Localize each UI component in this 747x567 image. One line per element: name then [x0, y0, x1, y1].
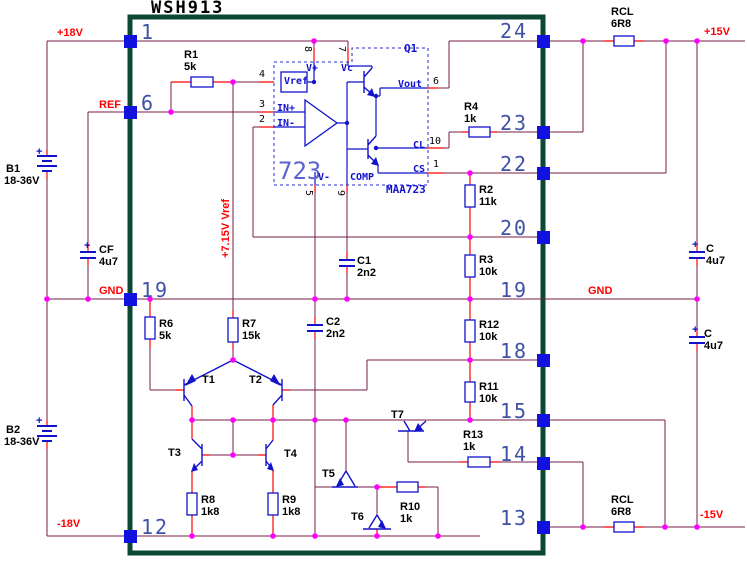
label-r1-ref: R1 [184, 50, 198, 61]
label-icpin-8: 8 [302, 46, 312, 52]
label-icpin-1: 1 [433, 160, 439, 170]
label-r9-ref: R9 [282, 495, 296, 506]
schematic-page: WSH913 +18VREFGND-18V+15VGND-15V+7.15V V… [0, 0, 747, 567]
label-ic-comp: COMP [350, 173, 374, 183]
label-r8-val: 1k8 [201, 507, 219, 518]
label-c1-ref: C1 [357, 256, 371, 267]
label-ic-723: 723 [278, 159, 321, 183]
label-t4-ref: T4 [284, 449, 297, 460]
label-b1-plus: + [36, 147, 42, 158]
label-pin-19-left: 19 [141, 280, 169, 300]
label-r1-val: 5k [184, 62, 196, 73]
label-pin-6: 6 [141, 93, 155, 113]
label-pin-14: 14 [500, 444, 528, 464]
label-r8-ref: R8 [201, 495, 215, 506]
label-icpin-10: 10 [429, 137, 441, 147]
label-ic-inplus: IN+ [277, 104, 295, 114]
label-r2-val: 11k [479, 197, 497, 208]
label-pin-19-right: 19 [500, 280, 528, 300]
label-t7-ref: T7 [391, 410, 404, 421]
label-pin-22: 22 [500, 154, 528, 174]
label-net-minus15v: -15V [700, 510, 723, 521]
label-r12-val: 10k [479, 332, 497, 343]
label-net-plus18v: +18V [57, 28, 83, 39]
label-ic-cs: CS [413, 165, 425, 175]
label-pin-23: 23 [500, 113, 528, 133]
label-r11-ref: R11 [479, 382, 499, 393]
label-t5-ref: T5 [322, 469, 335, 480]
label-ic-q1: Q1 [404, 43, 417, 54]
label-icpin-7: 7 [336, 46, 346, 52]
label-c-bot-plus: + [692, 325, 698, 336]
label-ic-vc: Vc [341, 64, 353, 74]
label-net-vref-7v15: +7.15V Vref [221, 199, 232, 258]
label-icpin-4: 4 [259, 70, 265, 80]
label-pin-1: 1 [141, 22, 155, 42]
label-b2-val: 18-36V [4, 437, 39, 448]
label-ic-cl: CL [413, 141, 425, 151]
label-ic-vplus: V+ [306, 64, 318, 74]
label-b1-val: 18-36V [4, 176, 39, 187]
label-t6-ref: T6 [351, 512, 364, 523]
label-c-top-val: 4u7 [706, 256, 725, 267]
label-r2-ref: R2 [479, 185, 493, 196]
label-r7-ref: R7 [242, 319, 256, 330]
label-r6-val: 5k [159, 331, 171, 342]
label-cf-ref: CF [99, 245, 114, 256]
label-ic-vminus: V- [318, 173, 330, 183]
label-c2-val: 2n2 [326, 329, 345, 340]
label-r4-ref: R4 [464, 102, 478, 113]
label-net-gnd-left: GND [99, 286, 123, 297]
label-icpin-9: 9 [335, 190, 345, 196]
label-rcl-top-val: 6R8 [611, 19, 631, 30]
label-c-top-ref: C [706, 244, 714, 255]
label-r11-val: 10k [479, 394, 497, 405]
label-cf-plus: + [84, 241, 90, 252]
label-r3-ref: R3 [479, 255, 493, 266]
label-c2-ref: C2 [326, 317, 340, 328]
label-net-plus15v: +15V [704, 27, 730, 38]
label-r4-val: 1k [464, 114, 476, 125]
label-r6-ref: R6 [159, 319, 173, 330]
label-r7-val: 15k [242, 331, 260, 342]
label-icpin-6: 6 [433, 77, 439, 87]
label-icpin-3: 3 [259, 100, 265, 110]
label-t2-ref: T2 [249, 375, 262, 386]
label-b2-plus: + [36, 416, 42, 427]
label-icpin-5: 5 [303, 190, 313, 196]
label-net-ref: REF [99, 100, 121, 111]
label-c1-val: 2n2 [357, 268, 376, 279]
label-r10-ref: R10 [400, 502, 420, 513]
label-net-gnd-right: GND [588, 286, 612, 297]
label-layer: +18VREFGND-18V+15VGND-15V+7.15V Vref1619… [0, 0, 747, 567]
label-b1-ref: B1 [6, 164, 20, 175]
label-c-bot-val: 4u7 [704, 341, 723, 352]
label-rcl-bot-ref: RCL [611, 495, 634, 506]
label-r13-ref: R13 [463, 430, 483, 441]
label-r12-ref: R12 [479, 320, 499, 331]
label-b2-ref: B2 [6, 425, 20, 436]
label-rcl-bot-val: 6R8 [611, 507, 631, 518]
label-ic-vout: Vout [398, 80, 422, 90]
label-ic-inminus: IN- [277, 119, 295, 129]
label-t1-ref: T1 [202, 375, 215, 386]
label-c-bot-ref: C [704, 329, 712, 340]
label-r9-val: 1k8 [282, 507, 300, 518]
label-pin-13: 13 [500, 508, 528, 528]
label-ic-part: MAA723 [386, 184, 426, 195]
label-r10-val: 1k [400, 514, 412, 525]
label-t3-ref: T3 [168, 448, 181, 459]
label-cf-val: 4u7 [99, 257, 118, 268]
label-rcl-top-ref: RCL [611, 7, 634, 18]
label-c-top-plus: + [692, 240, 698, 251]
label-pin-15: 15 [500, 401, 528, 421]
label-pin-18: 18 [500, 341, 528, 361]
label-pin-24: 24 [500, 21, 528, 41]
label-r3-val: 10k [479, 267, 497, 278]
label-r13-val: 1k [463, 442, 475, 453]
label-pin-20: 20 [500, 218, 528, 238]
label-icpin-2: 2 [259, 115, 265, 125]
label-net-minus18v: -18V [57, 519, 80, 530]
label-pin-12: 12 [141, 517, 169, 537]
label-ic-vref: Vref [284, 77, 308, 87]
